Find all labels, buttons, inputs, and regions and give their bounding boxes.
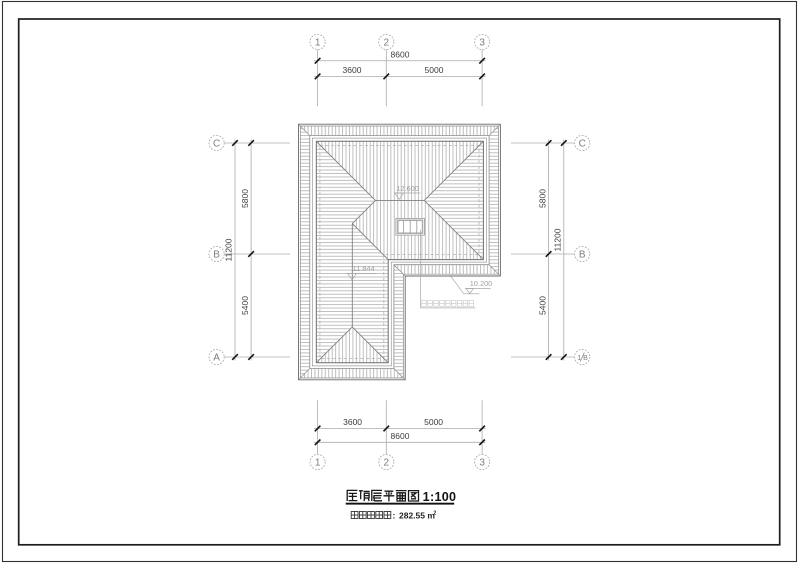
svg-text:2: 2: [434, 511, 437, 517]
svg-text:C: C: [213, 138, 220, 149]
svg-text:5000: 5000: [425, 65, 444, 75]
svg-text:1: 1: [315, 457, 321, 468]
svg-text:5000: 5000: [424, 417, 443, 427]
svg-text:2: 2: [384, 37, 390, 48]
svg-text:8600: 8600: [391, 49, 410, 59]
svg-text:282.55 m: 282.55 m: [399, 511, 435, 521]
svg-text:5800: 5800: [537, 189, 547, 208]
svg-text:3: 3: [479, 37, 485, 48]
svg-text:5800: 5800: [240, 189, 250, 208]
svg-text:3600: 3600: [343, 65, 362, 75]
svg-text:2: 2: [384, 457, 390, 468]
svg-text:C: C: [579, 138, 586, 149]
svg-text:11200: 11200: [224, 238, 234, 261]
svg-text::: :: [393, 511, 396, 521]
svg-text:8600: 8600: [391, 431, 410, 441]
svg-text:3: 3: [479, 457, 485, 468]
svg-text:11.844: 11.844: [353, 264, 375, 273]
svg-text:3600: 3600: [343, 417, 362, 427]
svg-text:5400: 5400: [240, 296, 250, 315]
svg-text:1: 1: [315, 37, 321, 48]
svg-text:1:100: 1:100: [423, 490, 457, 504]
svg-text:12.600: 12.600: [396, 184, 419, 193]
svg-text:B: B: [213, 249, 220, 260]
svg-text:B: B: [579, 249, 586, 260]
svg-text:11200: 11200: [553, 228, 563, 251]
svg-text:5400: 5400: [537, 296, 547, 315]
svg-text:A: A: [213, 352, 220, 363]
svg-text:10.200: 10.200: [470, 279, 493, 288]
svg-text:B: B: [583, 355, 588, 362]
